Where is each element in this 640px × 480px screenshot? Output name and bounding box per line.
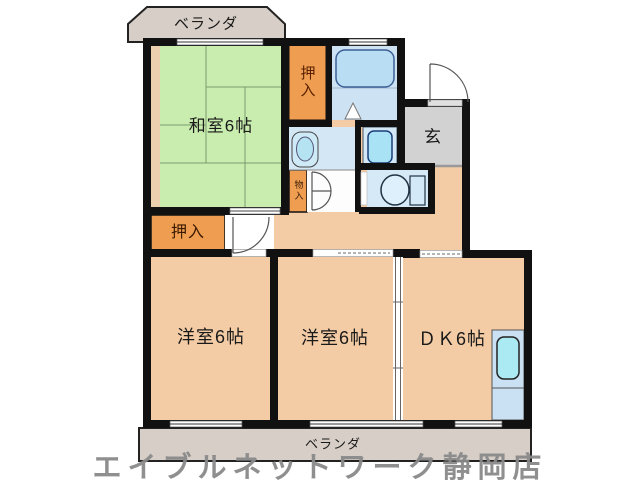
bathroom: [331, 44, 397, 120]
kitchen-unit: [492, 330, 524, 420]
washing-machine-area: [363, 127, 397, 167]
floor-plan-drawing: [0, 0, 640, 480]
door-zone-room1: [225, 215, 274, 253]
toilet-tank: [410, 176, 425, 205]
dk-label: ＤＫ6帖: [418, 330, 486, 348]
monoire-label: 物入: [294, 180, 303, 202]
toilet-room: [367, 170, 428, 207]
washroom: [289, 127, 355, 170]
bathtub: [336, 50, 394, 87]
yoshitsu-left-label: 洋室6帖: [177, 328, 245, 346]
oshiire-bottom-label: 押入: [171, 225, 205, 241]
washitsu-room-label: 和室6帖: [189, 118, 253, 135]
toilet-bowl: [381, 175, 409, 205]
washing-machine: [368, 131, 392, 163]
oshiire-top-label: 押入: [300, 65, 315, 99]
entrance-door-arc: [430, 64, 468, 102]
floor-plan: ベランダ 和室6帖 押入 玄 物入 押入 洋室6帖 洋室6帖 ＤＫ6帖 ベランダ…: [0, 0, 640, 480]
kitchen-sink: [497, 337, 519, 379]
agency-watermark: エイブルネットワーク静岡店: [0, 444, 640, 480]
yoshitsu-center-label: 洋室6帖: [301, 329, 369, 347]
veranda-top-label: ベランダ: [174, 17, 238, 32]
sliding-partition: [393, 257, 403, 420]
genkan-label: 玄: [424, 129, 442, 146]
